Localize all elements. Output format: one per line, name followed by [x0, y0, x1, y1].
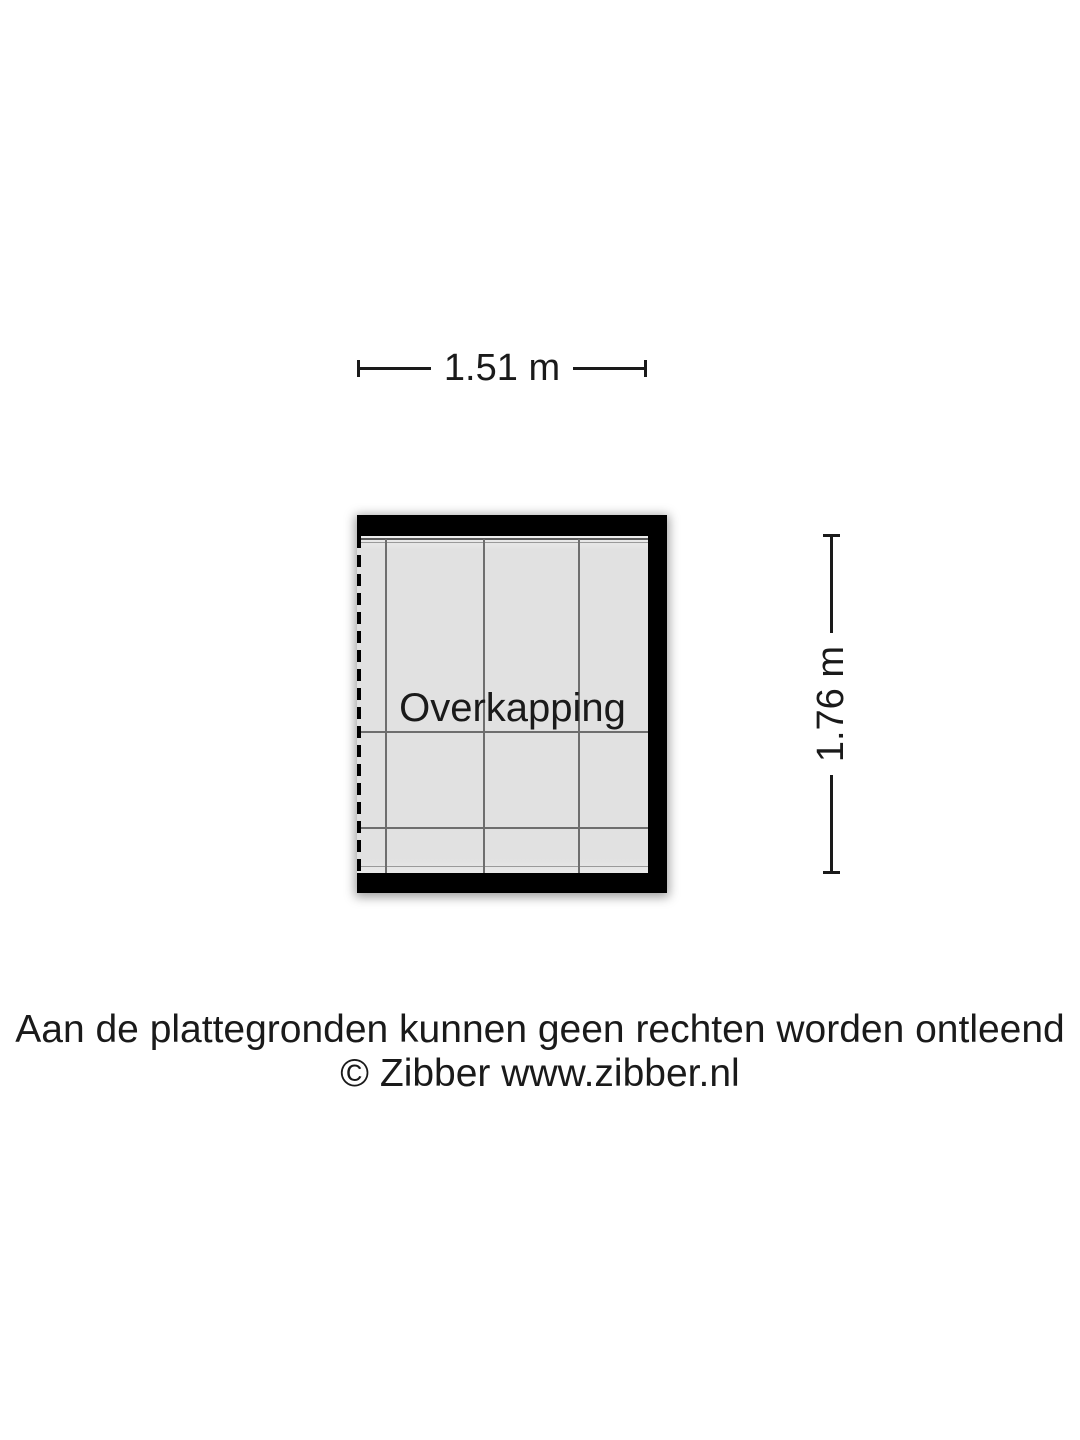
- room-floor: Overkapping: [357, 536, 648, 873]
- wall-top: [357, 515, 667, 536]
- dimension-tick: [644, 360, 647, 377]
- roof-panel-line: [357, 866, 648, 867]
- height-dimension: 1.76 m: [815, 534, 847, 874]
- roof-panel-line: [357, 827, 648, 829]
- floorplan-page: 1.51 m Overkapping 1.76 m Aan de platt: [0, 0, 1080, 1440]
- room-label: Overkapping: [367, 686, 658, 730]
- wall-bottom: [357, 873, 667, 893]
- dimension-tick: [823, 871, 840, 874]
- roof-edge-line: [357, 538, 648, 540]
- wall-right: [648, 515, 667, 893]
- roof-edge-line: [357, 542, 648, 543]
- disclaimer-text: Aan de plattegronden kunnen geen rechten…: [0, 1008, 1080, 1052]
- footer: Aan de plattegronden kunnen geen rechten…: [0, 1008, 1080, 1096]
- dimension-line: [830, 775, 833, 871]
- copyright-text: © Zibber www.zibber.nl: [0, 1052, 1080, 1096]
- height-dimension-label: 1.76 m: [812, 633, 850, 775]
- roof-panel-line: [357, 731, 648, 733]
- floorplan-room: Overkapping: [357, 515, 667, 893]
- open-side-dashed-line: [357, 536, 361, 873]
- width-dimension-label: 1.51 m: [444, 349, 560, 387]
- dimension-line: [573, 367, 644, 370]
- width-dimension: 1.51 m: [357, 352, 647, 384]
- dimension-line: [830, 537, 833, 633]
- dimension-line: [360, 367, 431, 370]
